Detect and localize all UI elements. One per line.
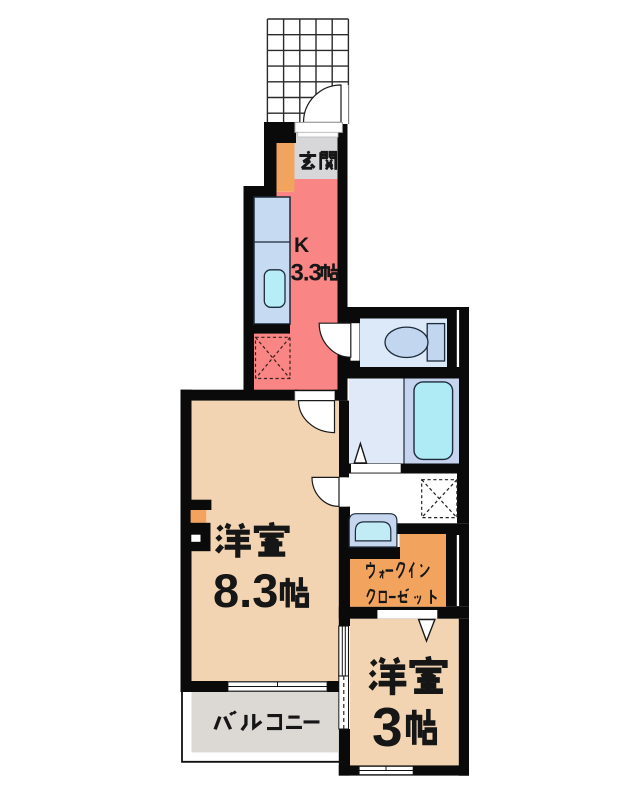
svg-text:3.3: 3.3 [291,260,322,287]
svg-text:K: K [294,234,309,257]
svg-text:3: 3 [372,696,403,758]
svg-text:8.3: 8.3 [213,564,278,617]
